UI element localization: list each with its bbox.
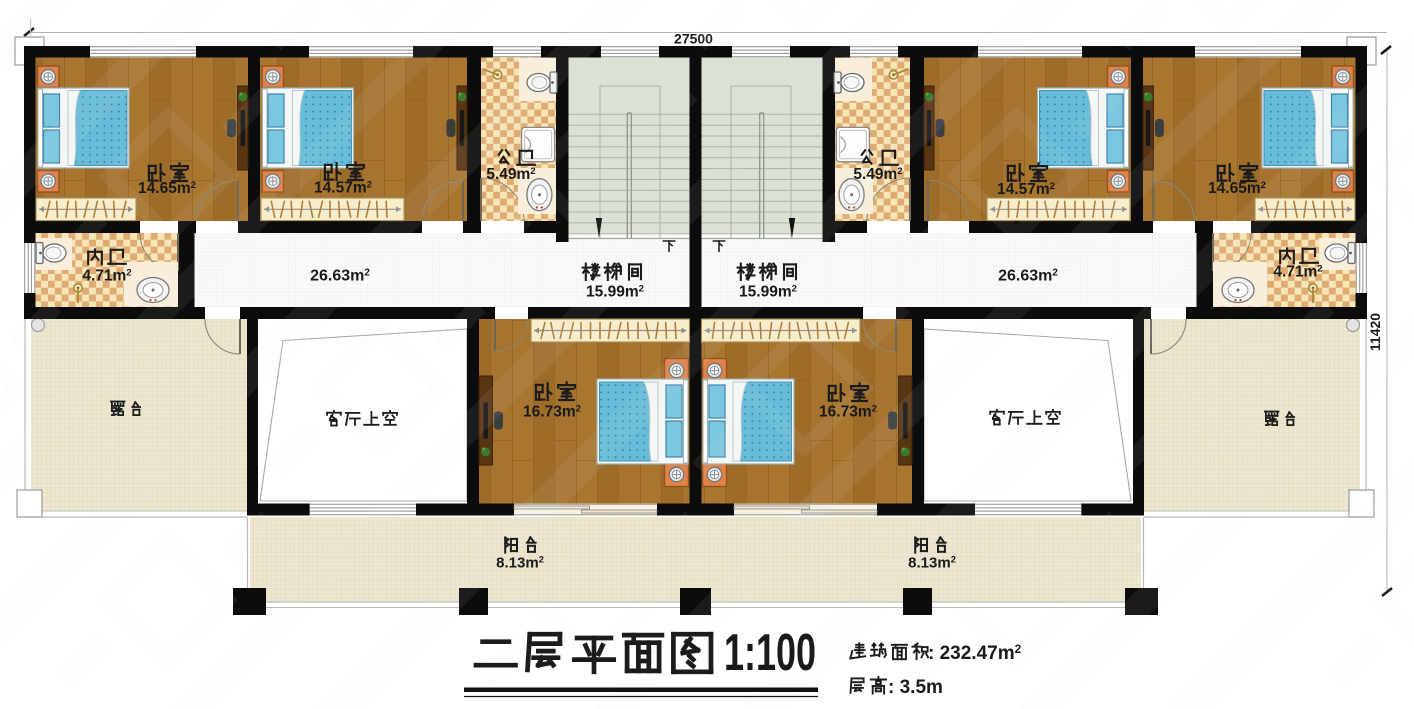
svg-text:14.57m2: 14.57m2: [997, 181, 1055, 198]
svg-text:8.13m2: 8.13m2: [908, 555, 956, 572]
svg-text:14.57m2: 14.57m2: [314, 180, 372, 197]
svg-text:16.73m2: 16.73m2: [819, 404, 877, 421]
svg-text:14.65m2: 14.65m2: [1208, 180, 1266, 197]
svg-text:26.63m2: 26.63m2: [310, 267, 370, 284]
svg-text:4.71m2: 4.71m2: [82, 268, 131, 285]
svg-text:15.99m2: 15.99m2: [739, 284, 797, 301]
svg-text:15.99m2: 15.99m2: [586, 284, 644, 301]
svg-text:: 232.47m2: : 232.47m2: [928, 642, 1022, 664]
svg-text:5.49m2: 5.49m2: [486, 166, 535, 183]
svg-text:: 3.5m: : 3.5m: [888, 677, 943, 698]
svg-text:14.65m2: 14.65m2: [138, 180, 196, 197]
svg-text:16.73m2: 16.73m2: [523, 404, 581, 421]
svg-text:4.71m2: 4.71m2: [1273, 264, 1322, 281]
svg-text:8.13m2: 8.13m2: [496, 555, 544, 572]
svg-text:1:100: 1:100: [724, 624, 816, 682]
svg-text:5.49m2: 5.49m2: [853, 166, 902, 183]
svg-text:26.63m2: 26.63m2: [998, 267, 1058, 284]
